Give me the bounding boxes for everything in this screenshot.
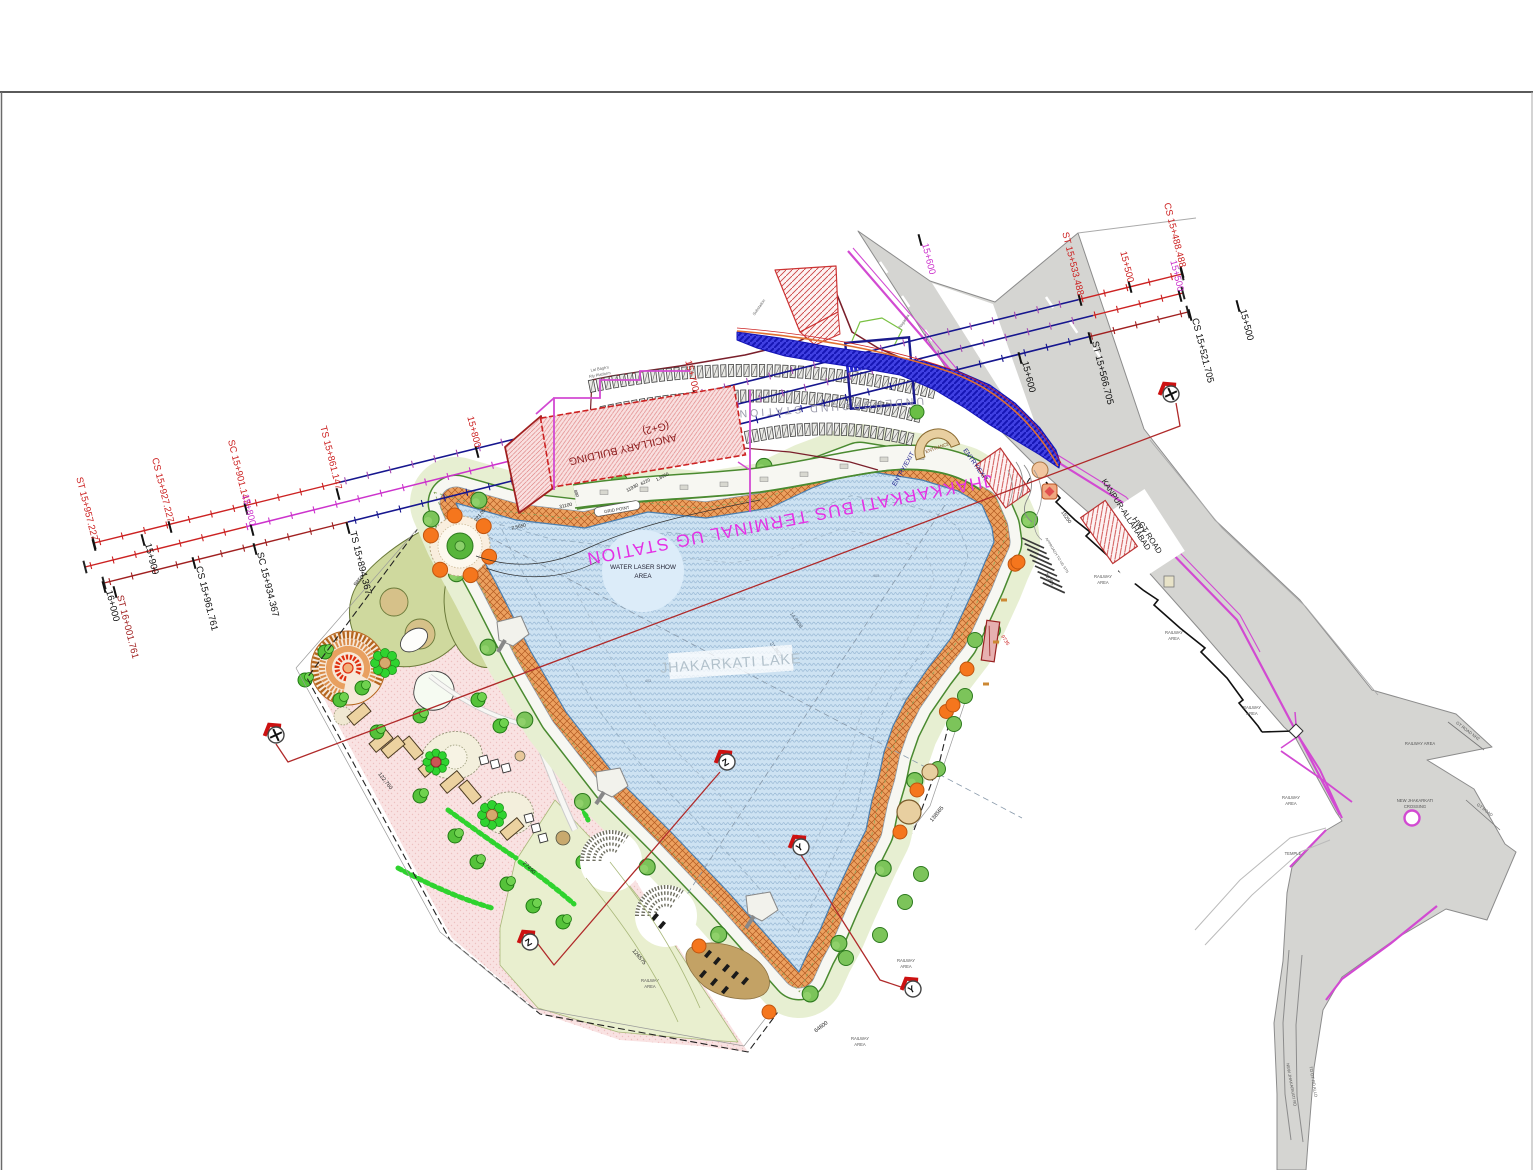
svg-text:403: 403 <box>645 679 651 683</box>
svg-text:AREA: AREA <box>900 964 912 969</box>
svg-text:RAILWAY: RAILWAY <box>1243 705 1261 710</box>
svg-text:RAILWAY: RAILWAY <box>897 958 915 963</box>
svg-text:TEMPLE: TEMPLE <box>1285 851 1302 856</box>
svg-text:AREA: AREA <box>644 984 656 989</box>
svg-text:AREA: AREA <box>854 1042 866 1047</box>
svg-text:AREA: AREA <box>1168 636 1180 641</box>
svg-text:AREA: AREA <box>1246 711 1258 716</box>
svg-text:RAILWAY: RAILWAY <box>851 1036 869 1041</box>
svg-text:RAILWAY: RAILWAY <box>1282 795 1300 800</box>
svg-text:NEW JHAKARKATI: NEW JHAKARKATI <box>1397 798 1433 803</box>
svg-text:AREA: AREA <box>1285 801 1297 806</box>
svg-text:403: 403 <box>739 597 745 601</box>
svg-text:AREA: AREA <box>634 573 652 580</box>
svg-text:CROSSING: CROSSING <box>1404 804 1426 809</box>
svg-text:WATER LASER SHOW: WATER LASER SHOW <box>610 564 676 571</box>
svg-text:AREA: AREA <box>1097 580 1109 585</box>
svg-text:408: 408 <box>867 839 873 843</box>
svg-text:RAILWAY AREA: RAILWAY AREA <box>1405 741 1436 746</box>
svg-text:403: 403 <box>873 574 879 578</box>
svg-text:405: 405 <box>902 697 908 701</box>
svg-text:RAILWAY: RAILWAY <box>1165 630 1183 635</box>
svg-text:RAILWAY: RAILWAY <box>1094 574 1112 579</box>
